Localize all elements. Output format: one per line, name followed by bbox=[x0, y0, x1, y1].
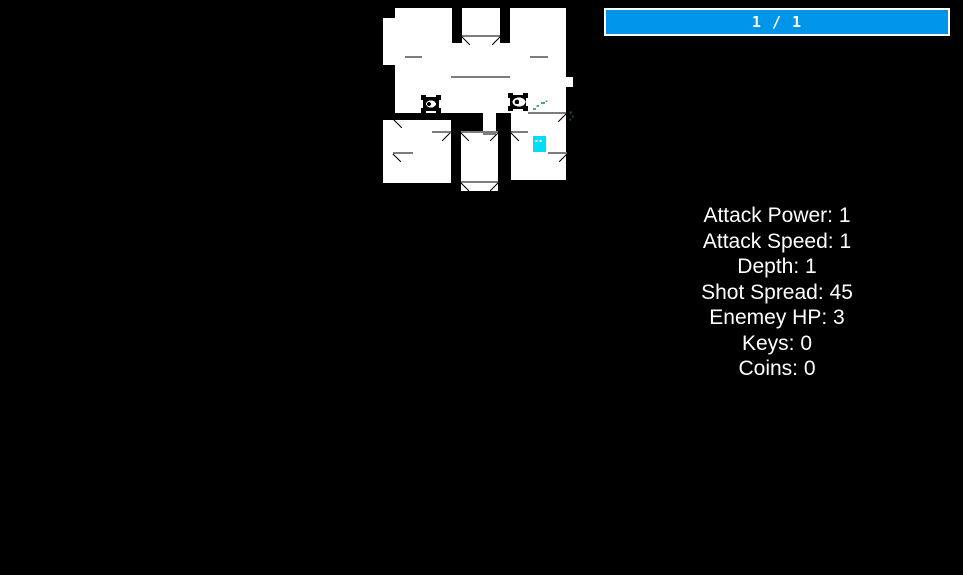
floor-region bbox=[566, 77, 573, 87]
enemy-pupil bbox=[515, 100, 520, 105]
wall-ledge-line bbox=[548, 152, 567, 154]
wall-ledge-line bbox=[405, 56, 422, 58]
wall-ledge-line bbox=[461, 181, 498, 183]
stat-enemy-hp: Enemey HP: 3 bbox=[604, 305, 950, 331]
stat-value: 1 bbox=[839, 204, 851, 227]
stat-label: Enemey HP: bbox=[709, 306, 827, 329]
stat-label: Keys: bbox=[742, 332, 795, 355]
stat-attack-speed: Attack Speed: 1 bbox=[604, 229, 950, 255]
stat-value: 1 bbox=[805, 255, 817, 278]
wall-ledge-line bbox=[432, 131, 451, 133]
dungeon-map[interactable] bbox=[383, 0, 575, 192]
wall-segment bbox=[451, 120, 461, 192]
shot-particle bbox=[570, 119, 572, 121]
stat-keys: Keys: 0 bbox=[604, 331, 950, 357]
enemy-pupil bbox=[427, 102, 431, 106]
hp-bar: 1 / 1 bbox=[604, 8, 950, 36]
wall-ledge-line bbox=[511, 131, 528, 133]
stat-value: 0 bbox=[800, 332, 812, 355]
stat-value: 1 bbox=[839, 230, 851, 253]
stat-label: Attack Power: bbox=[703, 204, 833, 227]
wall-segment bbox=[383, 113, 483, 120]
player-sprite bbox=[533, 136, 546, 152]
wall-ledge-line bbox=[528, 112, 566, 114]
wall-segment bbox=[498, 133, 511, 192]
hp-label: 1 / 1 bbox=[606, 10, 948, 34]
stat-depth: Depth: 1 bbox=[604, 254, 950, 280]
wall-ledge-line bbox=[393, 152, 413, 154]
wall-ledge-line bbox=[461, 131, 498, 133]
wall-segment bbox=[452, 0, 462, 43]
floor-region bbox=[383, 18, 395, 65]
wall-ledge-line bbox=[530, 56, 548, 58]
floor-region bbox=[462, 8, 500, 43]
shot-particle bbox=[537, 105, 540, 107]
game-screen: 1 / 1 Attack Power: 1 Attack Speed: 1 De… bbox=[0, 0, 963, 575]
wall-ledge-line bbox=[483, 133, 496, 135]
shot-particle bbox=[570, 112, 572, 114]
player-eye bbox=[540, 140, 542, 142]
shot-particle bbox=[541, 102, 545, 104]
shot-particle bbox=[533, 108, 536, 110]
player-eye bbox=[536, 140, 538, 142]
stat-value: 45 bbox=[830, 281, 853, 304]
stat-label: Coins: bbox=[738, 357, 798, 380]
wall-segment bbox=[500, 0, 510, 43]
wall-ledge-line bbox=[451, 76, 510, 78]
stat-value: 0 bbox=[804, 357, 816, 380]
stat-value: 3 bbox=[833, 306, 845, 329]
stats-panel: Attack Power: 1 Attack Speed: 1 Depth: 1… bbox=[604, 203, 950, 382]
shot-particle bbox=[546, 101, 548, 103]
stat-label: Attack Speed: bbox=[703, 230, 834, 253]
stat-attack-power: Attack Power: 1 bbox=[604, 203, 950, 229]
stat-shot-spread: Shot Spread: 45 bbox=[604, 280, 950, 306]
stat-coins: Coins: 0 bbox=[604, 356, 950, 382]
stat-label: Shot Spread: bbox=[701, 281, 824, 304]
shot-particle bbox=[572, 116, 574, 118]
stat-label: Depth: bbox=[737, 255, 799, 278]
floor-region bbox=[383, 120, 451, 183]
wall-ledge-line bbox=[462, 35, 500, 37]
